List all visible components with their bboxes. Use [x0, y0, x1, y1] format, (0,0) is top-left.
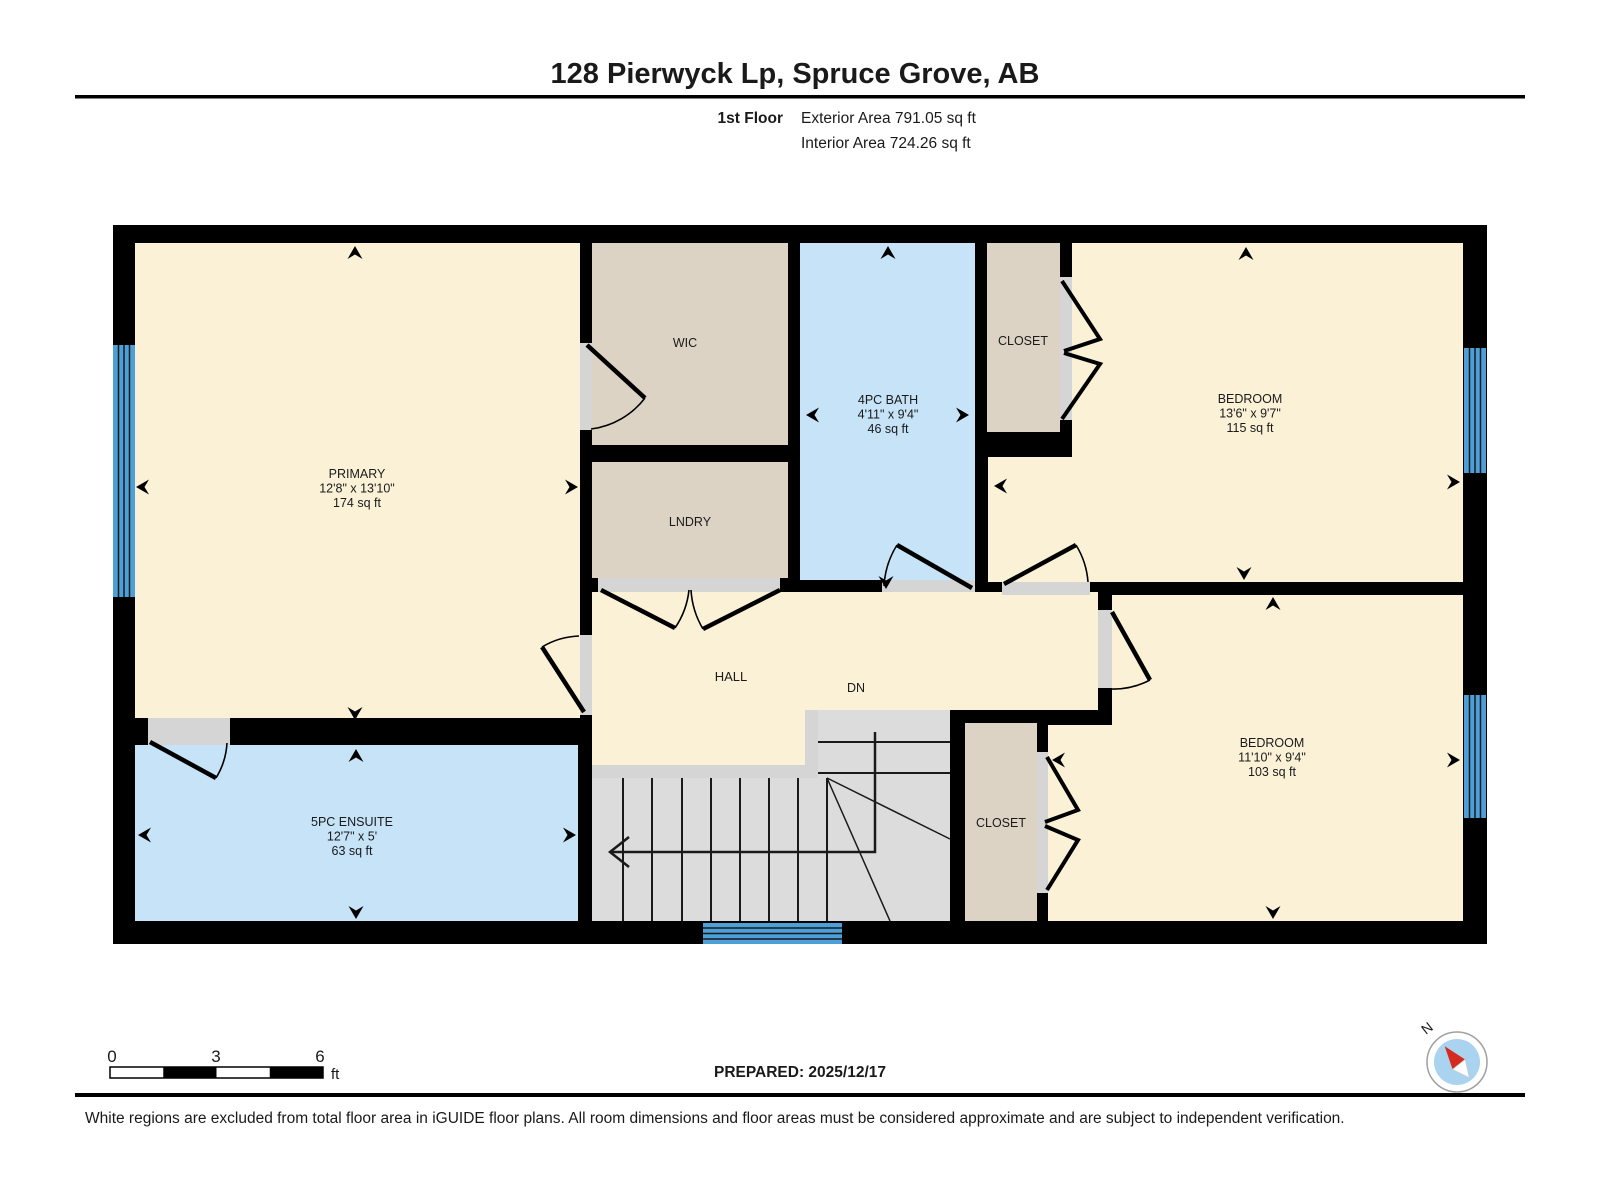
- room-label-laundry: LNDRY: [669, 515, 712, 529]
- compass-icon: N: [1418, 1019, 1487, 1092]
- room-label-bedroom-bottom-dims: 11'10" x 9'4": [1238, 751, 1306, 765]
- room-label-closet-top: CLOSET: [998, 334, 1048, 348]
- scale-bar: 0 3 6 ft: [107, 1047, 340, 1083]
- room-label-bedroom-top-area: 115 sq ft: [1226, 421, 1274, 435]
- stairs-dn-label: DN: [847, 681, 865, 695]
- interior-area-label: Interior Area 724.26 sq ft: [801, 135, 971, 152]
- room-label-ensuite-dims: 12'7" x 5': [327, 830, 377, 844]
- scale-tick-6: 6: [315, 1047, 324, 1066]
- window-stairs-bottom: [703, 923, 842, 944]
- room-label-bedroom-bottom-name: BEDROOM: [1240, 736, 1305, 750]
- compass-north-label: N: [1418, 1019, 1436, 1038]
- room-label-ensuite-area: 63 sq ft: [332, 844, 374, 858]
- window-bedroom-bottom-right: [1464, 695, 1486, 818]
- scale-bar-segment: [270, 1067, 323, 1078]
- room-label-primary-name: PRIMARY: [329, 467, 386, 481]
- window-bedroom-top-right: [1464, 348, 1486, 473]
- scale-bar-segment: [163, 1067, 216, 1078]
- header-divider: [75, 95, 1525, 99]
- room-label-bedroom-top-name: BEDROOM: [1218, 392, 1283, 406]
- prepared-date-label: PREPARED: 2025/12/17: [714, 1064, 886, 1081]
- room-label-bedroom-top: BEDROOM 13'6" x 9'7" 115 sq ft: [1218, 392, 1283, 435]
- room-label-bedroom-top-dims: 13'6" x 9'7": [1219, 407, 1281, 421]
- scale-unit-label: ft: [331, 1066, 340, 1083]
- floor-label: 1st Floor: [718, 110, 783, 127]
- scale-tick-3: 3: [211, 1047, 220, 1066]
- room-label-bath-name: 4PC BATH: [858, 393, 918, 407]
- page-title: 128 Pierwyck Lp, Spruce Grove, AB: [551, 58, 1040, 90]
- window-primary-left: [113, 345, 135, 597]
- room-label-wic: WIC: [673, 336, 697, 350]
- room-label-bedroom-bottom-area: 103 sq ft: [1248, 765, 1296, 779]
- floor-plan-canvas: 128 Pierwyck Lp, Spruce Grove, AB 1st Fl…: [0, 0, 1600, 1200]
- room-label-bedroom-bottom: BEDROOM 11'10" x 9'4" 103 sq ft: [1238, 736, 1306, 779]
- room-label-bath-dims: 4'11" x 9'4": [858, 408, 919, 422]
- floor-plan-page: 128 Pierwyck Lp, Spruce Grove, AB 1st Fl…: [0, 0, 1600, 1200]
- exterior-area-label: Exterior Area 791.05 sq ft: [801, 110, 977, 127]
- room-label-hall: HALL: [715, 669, 748, 684]
- disclaimer-text: White regions are excluded from total fl…: [85, 1110, 1345, 1127]
- room-label-primary-area: 174 sq ft: [333, 496, 381, 510]
- scale-tick-0: 0: [107, 1047, 116, 1066]
- footer-divider: [75, 1093, 1525, 1097]
- room-label-primary-dims: 12'8" x 13'10": [319, 482, 395, 496]
- room-label-closet-bottom: CLOSET: [976, 816, 1026, 830]
- room-label-ensuite-name: 5PC ENSUITE: [311, 815, 393, 829]
- room-label-bath-area: 46 sq ft: [868, 422, 910, 436]
